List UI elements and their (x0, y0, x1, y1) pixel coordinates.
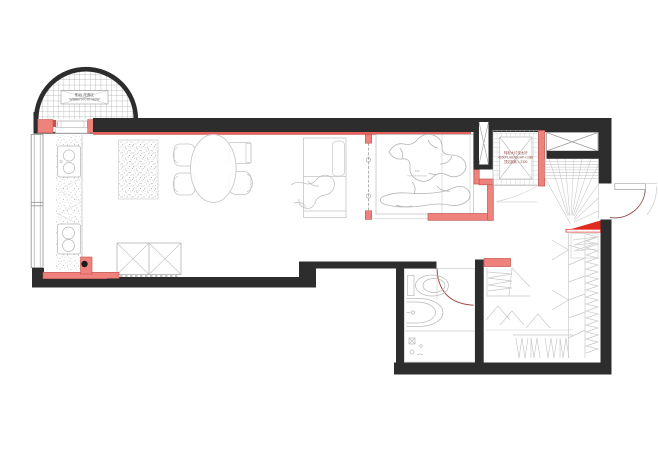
svg-text:380: 380 (414, 169, 419, 173)
svg-text:阳台 改造区: 阳台 改造区 (75, 92, 94, 97)
svg-text:xxxxxxxxxxxxx: xxxxxxxxxxxxx (407, 174, 427, 178)
svg-text:吨柜大灯没太好: 吨柜大灯没太好 (504, 150, 528, 155)
svg-text:4650PUx600xxHP+1380: 4650PUx600xxHP+1380 (498, 155, 533, 159)
svg-text:WR80707070?dUW: WR80707070?dUW (69, 98, 100, 102)
svg-text:顶见距离 = 2300: 顶见距离 = 2300 (504, 159, 528, 164)
